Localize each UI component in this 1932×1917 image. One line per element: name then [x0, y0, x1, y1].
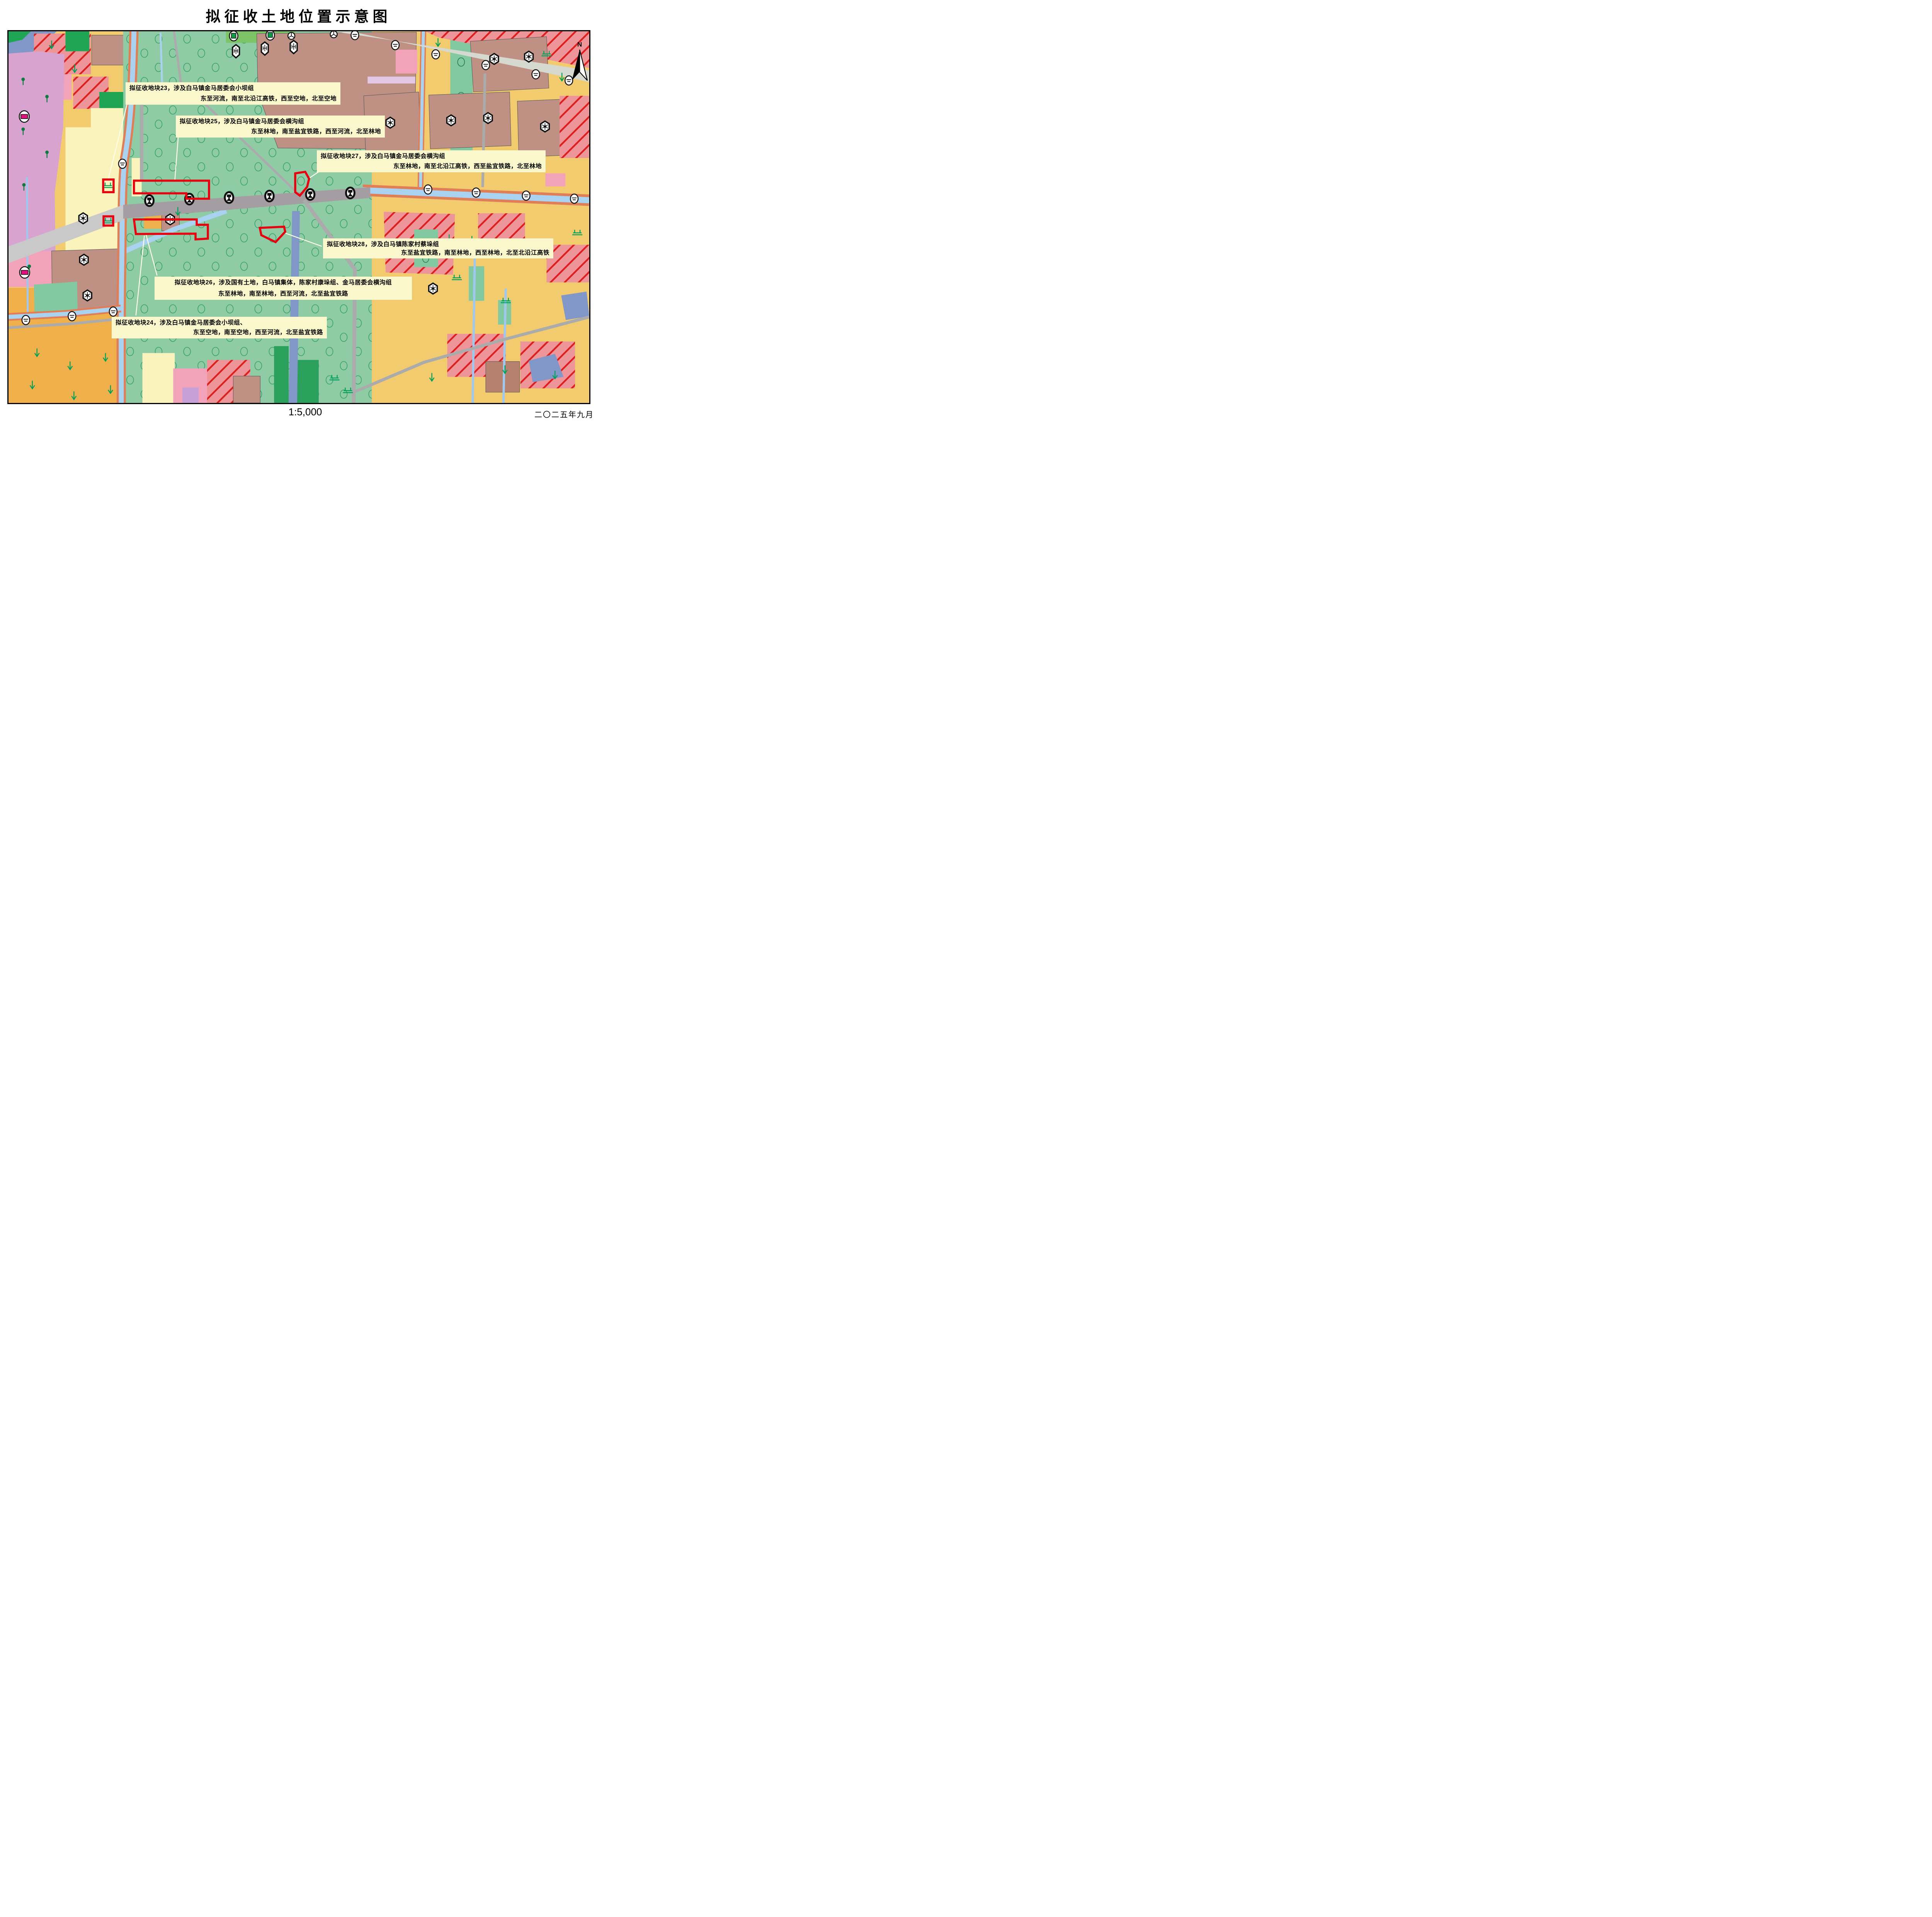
hexagon-settlement-icon: [541, 121, 549, 132]
bridge-icon: [482, 61, 490, 70]
railway-icon: [306, 189, 315, 200]
bridge-icon: [424, 185, 432, 194]
label-parcel-25-line1: 拟征收地块25，涉及白马镇金马居委会横沟组: [180, 117, 381, 126]
bridge-icon: [570, 194, 578, 203]
bridge-icon: [119, 159, 126, 168]
hexagon-settlement-icon: [484, 113, 492, 124]
shield-icon: [290, 41, 297, 54]
label-parcel-24: 拟征收地块24，涉及白马镇金马居委会小坝组、 东至空地，南至空地，西至河流，北至…: [112, 317, 327, 338]
shield-icon: [261, 42, 268, 55]
label-parcel-28: 拟征收地块28，涉及白马镇陈家村蔡垛组 东至盐宜铁路，南至林地，西至林地，北至北…: [323, 238, 553, 258]
label-parcel-28-line1: 拟征收地块28，涉及白马镇陈家村蔡垛组: [327, 240, 549, 249]
label-parcel-26: 拟征收地块26，涉及国有土地，白马镇集体，陈家村康垛组、金马居委会横沟组 东至林…: [155, 277, 412, 300]
bridge-icon: [351, 31, 359, 40]
bridge-icon: [432, 50, 440, 59]
hexagon-settlement-icon: [386, 117, 395, 128]
park-icon: [266, 31, 274, 40]
label-parcel-27: 拟征收地块27，涉及白马镇金马居委会横沟组 东至林地，南至北沿江高铁，西至盐宜铁…: [317, 150, 546, 172]
railway-icon: [225, 192, 233, 203]
railway-icon: [265, 190, 274, 201]
park-icon: [230, 31, 238, 41]
label-parcel-23-line2: 东至河流，南至北沿江高铁，西至空地，北至空地: [201, 95, 337, 103]
map-scale: 1:5,000: [270, 406, 340, 418]
hexagon-settlement-icon: [429, 283, 437, 294]
pond: [561, 292, 589, 320]
bridge-icon: [68, 311, 76, 321]
hexagon-settlement-icon: [447, 115, 455, 126]
bridge-icon: [472, 188, 480, 197]
label-parcel-27-line1: 拟征收地块27，涉及白马镇金马居委会横沟组: [321, 152, 542, 161]
shield-icon: [233, 45, 240, 58]
label-parcel-27-line2: 东至林地，南至北沿江高铁，西至盐宜铁路，北至林地: [393, 162, 542, 171]
hexagon-settlement-icon: [525, 51, 533, 62]
bridge-icon: [22, 315, 30, 325]
bridge-icon: [109, 307, 117, 316]
railway-icon: [346, 187, 355, 198]
label-parcel-24-line2: 东至空地，南至空地，西至河流，北至盐宜铁路: [193, 328, 323, 337]
map: N 拟征收地块23，涉及白马镇金马居委会小坝组 东至河流，南至北沿江高铁，西至空…: [7, 30, 590, 404]
label-parcel-24-line1: 拟征收地块24，涉及白马镇金马居委会小坝组、: [116, 319, 323, 327]
kindergarten-icon: [20, 267, 30, 278]
north-arrow-label: N: [577, 41, 582, 48]
hexagon-settlement-icon: [490, 54, 498, 65]
bridge-icon: [522, 191, 530, 200]
kindergarten-icon: [19, 111, 29, 122]
hexagon-settlement-icon: [80, 254, 88, 265]
bridge-icon: [391, 41, 399, 50]
label-parcel-26-line1: 拟征收地块26，涉及国有土地，白马镇集体，陈家村康垛组、金马居委会横沟组: [175, 279, 392, 287]
circle-sector-icon: [330, 31, 337, 38]
label-parcel-25: 拟征收地块25，涉及白马镇金马居委会横沟组 东至林地，南至盐宜铁路，西至河流，北…: [176, 116, 385, 138]
bridge-icon: [532, 70, 540, 79]
page-title: 拟征收土地位置示意图: [0, 5, 597, 26]
label-parcel-23: 拟征收地块23，涉及白马镇金马居委会小坝组 东至河流，南至北沿江高铁，西至空地，…: [126, 82, 340, 105]
label-parcel-25-line2: 东至林地，南至盐宜铁路，西至河流，北至林地: [251, 127, 381, 136]
circle-sector-icon: [288, 32, 295, 39]
railway-icon: [145, 195, 154, 206]
map-date: 二〇二五年九月: [534, 408, 594, 420]
label-parcel-23-line1: 拟征收地块23，涉及白马镇金马居委会小坝组: [129, 84, 337, 93]
label-parcel-28-line2: 东至盐宜铁路，南至林地，西至林地，北至北沿江高铁: [401, 249, 549, 257]
bridge-icon: [565, 76, 573, 85]
label-parcel-26-line2: 东至林地，南至林地，西至河流，北至盐宜铁路: [218, 290, 348, 298]
hexagon-settlement-icon: [79, 213, 87, 224]
land-acquisition-map-sheet: 拟征收土地位置示意图: [0, 0, 597, 422]
hexagon-settlement-icon: [83, 290, 92, 301]
